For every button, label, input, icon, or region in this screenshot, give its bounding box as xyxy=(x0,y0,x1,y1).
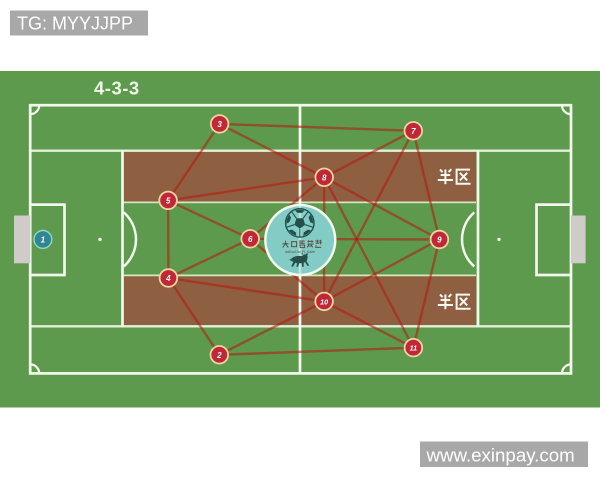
svg-text:4-3-3: 4-3-3 xyxy=(94,78,140,99)
svg-text:daKouDai PL Saite: daKouDai PL Saite xyxy=(285,250,315,254)
svg-text:11: 11 xyxy=(410,344,417,353)
svg-text:8: 8 xyxy=(322,174,327,183)
svg-text:6: 6 xyxy=(248,235,253,244)
svg-text:5: 5 xyxy=(166,197,171,206)
svg-text:TG: MYYJJPP: TG: MYYJJPP xyxy=(17,14,133,34)
svg-text:10: 10 xyxy=(320,297,328,306)
svg-text:www.exinpay.com: www.exinpay.com xyxy=(426,445,575,466)
svg-text:2: 2 xyxy=(216,351,222,360)
svg-text:7: 7 xyxy=(411,127,416,136)
svg-text:4: 4 xyxy=(165,274,171,283)
svg-text:1: 1 xyxy=(41,236,46,245)
svg-text:9: 9 xyxy=(437,236,442,245)
svg-text:3: 3 xyxy=(217,120,222,129)
